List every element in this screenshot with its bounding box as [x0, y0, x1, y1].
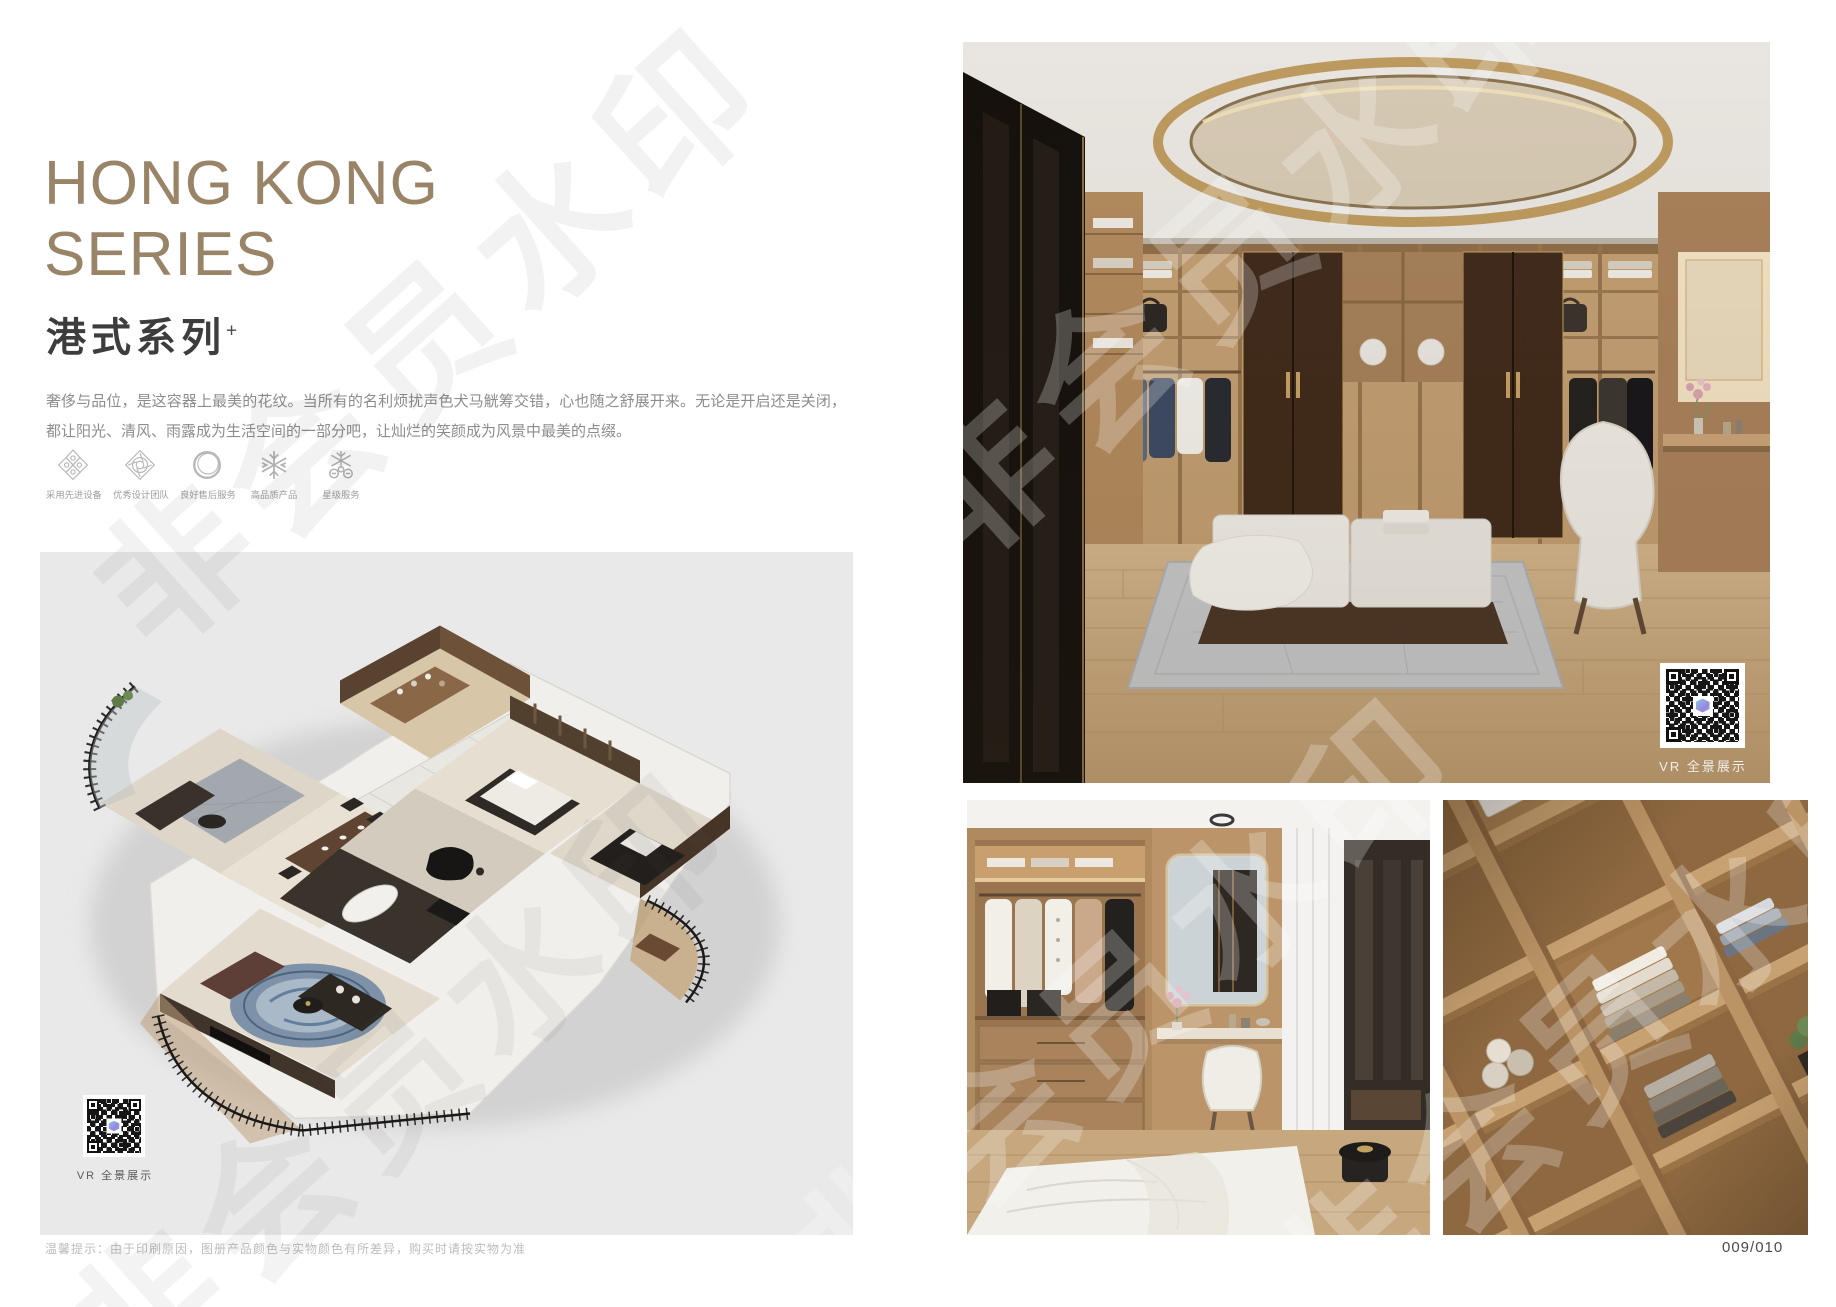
series-subtitle: 港式系列+	[46, 305, 237, 363]
feature-aftersales: 良好售后服务	[178, 449, 236, 502]
qr-pattern	[1666, 669, 1739, 742]
ring-icon	[178, 449, 236, 481]
qr-finder	[129, 1099, 141, 1111]
feature-list: 采用先进设备 优秀设计团队 良好售后服务	[44, 449, 379, 502]
series-description: 奢侈与品位，是这容器上最美的花纹。当所有的名利烦扰声色犬马觥筹交错，心也随之舒展…	[46, 387, 846, 447]
ornament-diamond-icon	[111, 449, 169, 481]
title-line2: SERIES	[44, 219, 439, 290]
qr-finder	[1666, 669, 1681, 684]
qr-finder	[1724, 669, 1739, 684]
black-side-table	[1339, 1142, 1391, 1182]
qr-logo-cube-icon	[107, 1119, 122, 1134]
qr-finder	[87, 1141, 99, 1153]
feature-quality: 高品质产品	[245, 449, 303, 502]
star-service-icon	[312, 449, 370, 481]
feature-star-service: 星级服务	[312, 449, 370, 502]
vanity-mirror-area	[1152, 828, 1282, 1160]
title-line1: HONG KONG	[44, 148, 439, 219]
main-photo-vr-label: VR 全景展示	[1657, 756, 1749, 775]
subtitle-text: 港式系列	[46, 316, 226, 360]
catalog-page: HONG KONG SERIES 港式系列+ 奢侈与品位，是这容器上最美的花纹。…	[0, 0, 1836, 1307]
main-photo-qr-code	[1660, 663, 1745, 748]
qr-pattern	[87, 1099, 141, 1153]
floorplan-qr-code	[83, 1095, 145, 1157]
subtitle-plus-mark: +	[226, 321, 237, 342]
feature-equipment: 采用先进设备	[44, 449, 102, 502]
feature-label: 采用先进设备	[46, 487, 100, 501]
shelf-closeup-photo	[1443, 800, 1808, 1235]
open-wardrobe	[967, 828, 1152, 1160]
floorplan-image: VR 全景展示	[40, 552, 853, 1235]
page-number: 009/010	[1722, 1239, 1783, 1256]
walk-in-closet-photo: VR 全景展示	[963, 42, 1770, 783]
footer-disclaimer: 温馨提示：由于印刷原因，图册产品颜色与实物颜色有所差异，购买时请按实物为准	[45, 1240, 526, 1257]
feature-label: 星级服务	[314, 487, 368, 501]
floorplan-vr-label: VR 全景展示	[74, 1167, 156, 1183]
feature-design-team: 优秀设计团队	[111, 449, 169, 502]
feature-label: 高品质产品	[247, 487, 301, 501]
isometric-floorplan-illustration	[40, 552, 853, 1235]
feature-label: 良好售后服务	[180, 487, 234, 501]
snowflake-icon	[245, 449, 303, 481]
feature-label: 优秀设计团队	[113, 487, 167, 501]
wall-panels	[1282, 828, 1344, 1130]
qr-logo-cube-icon	[1693, 696, 1713, 716]
adjacent-dark-room	[1344, 840, 1430, 1132]
ornament-clover-icon	[44, 449, 102, 481]
qr-finder	[87, 1099, 99, 1111]
page-title: HONG KONG SERIES	[44, 148, 439, 290]
dressing-area-illustration	[967, 800, 1430, 1235]
qr-finder	[1666, 727, 1681, 742]
dressing-area-photo	[967, 800, 1430, 1235]
shelf-closeup-illustration	[1443, 800, 1808, 1235]
walk-in-closet-illustration	[963, 42, 1770, 783]
